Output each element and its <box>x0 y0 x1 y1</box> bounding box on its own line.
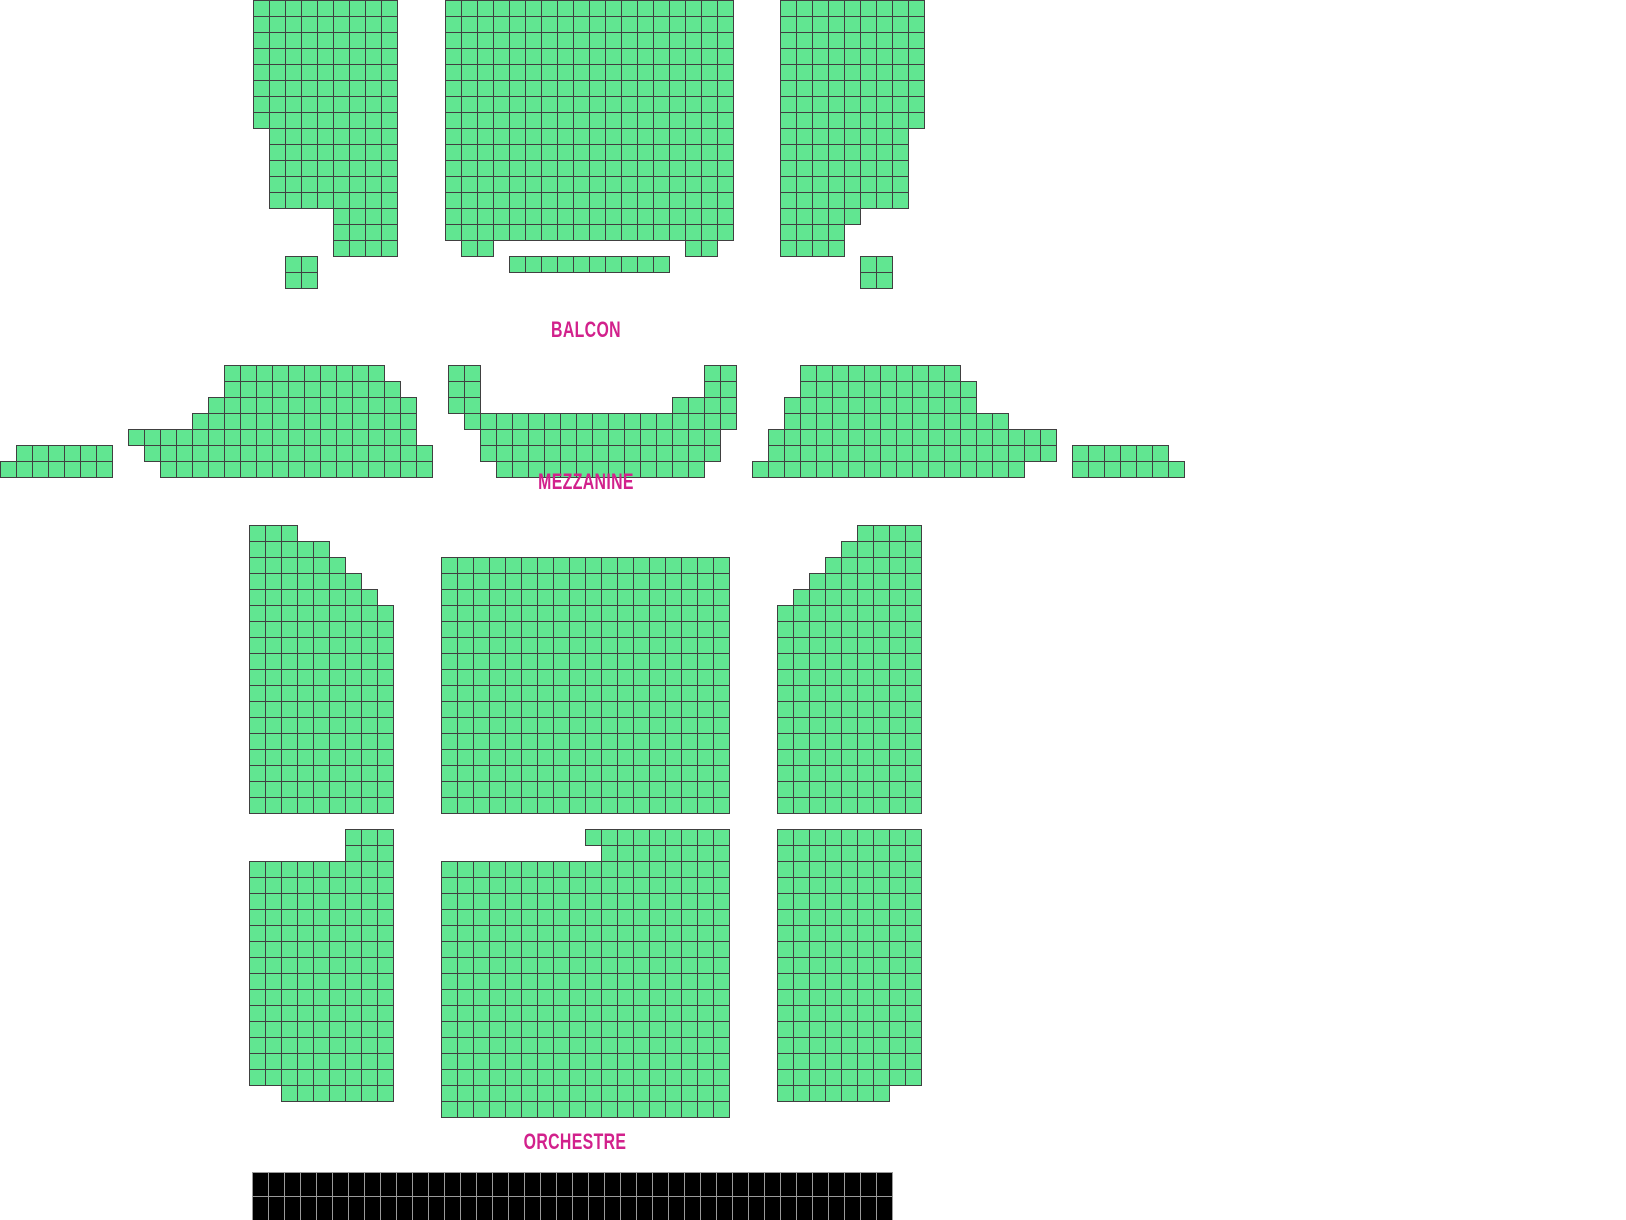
seat[interactable] <box>541 16 558 33</box>
seat[interactable] <box>224 461 241 478</box>
seat[interactable] <box>697 1053 714 1070</box>
seat[interactable] <box>553 765 570 782</box>
seat[interactable] <box>681 589 698 606</box>
seat[interactable] <box>876 96 893 113</box>
seat[interactable] <box>793 749 810 766</box>
seat[interactable] <box>265 941 282 958</box>
seat[interactable] <box>844 112 861 129</box>
seat[interactable] <box>857 621 874 638</box>
seat[interactable] <box>960 397 977 414</box>
seat[interactable] <box>605 176 622 193</box>
seat[interactable] <box>841 1069 858 1086</box>
seat[interactable] <box>825 589 842 606</box>
seat[interactable] <box>796 96 813 113</box>
seat[interactable] <box>240 445 257 462</box>
seat[interactable] <box>809 669 826 686</box>
seat[interactable] <box>665 1053 682 1070</box>
seat[interactable] <box>601 637 618 654</box>
seat[interactable] <box>249 781 266 798</box>
seat[interactable] <box>857 637 874 654</box>
seat[interactable] <box>800 461 817 478</box>
seat[interactable] <box>553 589 570 606</box>
seat[interactable] <box>509 144 526 161</box>
seat[interactable] <box>489 1069 506 1086</box>
seat[interactable] <box>633 861 650 878</box>
seat[interactable] <box>317 48 334 65</box>
seat[interactable] <box>701 240 718 257</box>
seat[interactable] <box>297 893 314 910</box>
seat[interactable] <box>361 653 378 670</box>
seat[interactable] <box>585 797 602 814</box>
seat[interactable] <box>976 429 993 446</box>
seat[interactable] <box>445 192 462 209</box>
seat[interactable] <box>304 429 321 446</box>
seat[interactable] <box>281 1021 298 1038</box>
seat[interactable] <box>281 973 298 990</box>
seat[interactable] <box>345 717 362 734</box>
seat[interactable] <box>713 557 730 574</box>
seat[interactable] <box>349 48 366 65</box>
seat[interactable] <box>793 893 810 910</box>
seat[interactable] <box>605 256 622 273</box>
seat[interactable] <box>457 605 474 622</box>
seat[interactable] <box>637 48 654 65</box>
seat[interactable] <box>128 429 145 446</box>
seat[interactable] <box>473 621 490 638</box>
seat[interactable] <box>352 461 369 478</box>
seat[interactable] <box>857 669 874 686</box>
seat[interactable] <box>793 909 810 926</box>
seat[interactable] <box>697 829 714 846</box>
seat[interactable] <box>873 701 890 718</box>
seat[interactable] <box>809 621 826 638</box>
seat[interactable] <box>873 797 890 814</box>
seat[interactable] <box>809 941 826 958</box>
seat[interactable] <box>688 445 705 462</box>
seat[interactable] <box>489 589 506 606</box>
seat[interactable] <box>873 989 890 1006</box>
seat[interactable] <box>681 941 698 958</box>
seat[interactable] <box>665 973 682 990</box>
seat[interactable] <box>525 48 542 65</box>
seat[interactable] <box>796 144 813 161</box>
seat[interactable] <box>1008 461 1025 478</box>
seat[interactable] <box>825 797 842 814</box>
seat[interactable] <box>809 845 826 862</box>
seat[interactable] <box>329 909 346 926</box>
seat[interactable] <box>445 144 462 161</box>
seat[interactable] <box>928 429 945 446</box>
seat[interactable] <box>617 1101 634 1118</box>
seat[interactable] <box>457 653 474 670</box>
seat[interactable] <box>313 573 330 590</box>
seat[interactable] <box>896 461 913 478</box>
seat[interactable] <box>365 16 382 33</box>
seat[interactable] <box>809 1005 826 1022</box>
seat[interactable] <box>265 973 282 990</box>
seat[interactable] <box>908 64 925 81</box>
seat[interactable] <box>345 909 362 926</box>
seat[interactable] <box>633 941 650 958</box>
seat[interactable] <box>457 733 474 750</box>
seat[interactable] <box>249 877 266 894</box>
seat[interactable] <box>553 1069 570 1086</box>
seat[interactable] <box>944 429 961 446</box>
seat[interactable] <box>841 541 858 558</box>
seat[interactable] <box>345 877 362 894</box>
seat[interactable] <box>828 0 845 17</box>
seat[interactable] <box>720 365 737 382</box>
seat[interactable] <box>301 192 318 209</box>
seat[interactable] <box>345 685 362 702</box>
seat[interactable] <box>601 989 618 1006</box>
seat[interactable] <box>589 64 606 81</box>
seat[interactable] <box>333 64 350 81</box>
seat[interactable] <box>537 733 554 750</box>
seat[interactable] <box>873 877 890 894</box>
seat[interactable] <box>285 48 302 65</box>
seat[interactable] <box>793 829 810 846</box>
seat[interactable] <box>793 957 810 974</box>
seat[interactable] <box>365 240 382 257</box>
seat[interactable] <box>672 445 689 462</box>
seat[interactable] <box>585 1069 602 1086</box>
seat[interactable] <box>285 192 302 209</box>
seat[interactable] <box>685 0 702 17</box>
seat[interactable] <box>857 973 874 990</box>
seat[interactable] <box>876 16 893 33</box>
seat[interactable] <box>697 845 714 862</box>
seat[interactable] <box>857 701 874 718</box>
seat[interactable] <box>717 224 734 241</box>
seat[interactable] <box>617 781 634 798</box>
seat[interactable] <box>557 208 574 225</box>
seat[interactable] <box>1152 445 1169 462</box>
seat[interactable] <box>585 749 602 766</box>
seat[interactable] <box>681 893 698 910</box>
seat[interactable] <box>649 637 666 654</box>
seat[interactable] <box>457 1053 474 1070</box>
seat[interactable] <box>269 112 286 129</box>
seat[interactable] <box>477 224 494 241</box>
seat[interactable] <box>685 160 702 177</box>
seat[interactable] <box>249 541 266 558</box>
seat[interactable] <box>701 16 718 33</box>
seat[interactable] <box>345 701 362 718</box>
seat[interactable] <box>521 669 538 686</box>
seat[interactable] <box>585 1053 602 1070</box>
seat[interactable] <box>477 32 494 49</box>
seat[interactable] <box>637 144 654 161</box>
seat[interactable] <box>617 701 634 718</box>
seat[interactable] <box>685 128 702 145</box>
seat[interactable] <box>713 669 730 686</box>
seat[interactable] <box>780 112 797 129</box>
seat[interactable] <box>489 941 506 958</box>
seat[interactable] <box>361 941 378 958</box>
seat[interactable] <box>521 781 538 798</box>
seat[interactable] <box>697 685 714 702</box>
seat[interactable] <box>297 1037 314 1054</box>
seat[interactable] <box>265 1005 282 1022</box>
seat[interactable] <box>585 573 602 590</box>
seat[interactable] <box>477 208 494 225</box>
seat[interactable] <box>592 413 609 430</box>
seat[interactable] <box>192 461 209 478</box>
seat[interactable] <box>892 80 909 97</box>
seat[interactable] <box>569 877 586 894</box>
seat[interactable] <box>697 941 714 958</box>
seat[interactable] <box>457 893 474 910</box>
seat[interactable] <box>649 765 666 782</box>
seat[interactable] <box>249 573 266 590</box>
seat[interactable] <box>537 1037 554 1054</box>
seat[interactable] <box>681 925 698 942</box>
seat[interactable] <box>649 589 666 606</box>
seat[interactable] <box>944 445 961 462</box>
seat[interactable] <box>720 397 737 414</box>
seat[interactable] <box>349 64 366 81</box>
seat[interactable] <box>892 0 909 17</box>
seat[interactable] <box>589 112 606 129</box>
seat[interactable] <box>601 589 618 606</box>
seat[interactable] <box>365 176 382 193</box>
seat[interactable] <box>569 1101 586 1118</box>
seat[interactable] <box>669 112 686 129</box>
seat[interactable] <box>905 653 922 670</box>
seat[interactable] <box>816 413 833 430</box>
seat[interactable] <box>457 925 474 942</box>
seat[interactable] <box>912 461 929 478</box>
seat[interactable] <box>601 781 618 798</box>
seat[interactable] <box>649 701 666 718</box>
seat[interactable] <box>368 461 385 478</box>
seat[interactable] <box>800 365 817 382</box>
seat[interactable] <box>377 893 394 910</box>
seat[interactable] <box>489 797 506 814</box>
seat[interactable] <box>441 861 458 878</box>
seat[interactable] <box>912 413 929 430</box>
seat[interactable] <box>637 16 654 33</box>
seat[interactable] <box>537 893 554 910</box>
seat[interactable] <box>345 573 362 590</box>
seat[interactable] <box>461 224 478 241</box>
seat[interactable] <box>889 701 906 718</box>
seat[interactable] <box>649 669 666 686</box>
seat[interactable] <box>621 256 638 273</box>
seat[interactable] <box>1152 461 1169 478</box>
seat[interactable] <box>349 0 366 17</box>
seat[interactable] <box>697 957 714 974</box>
seat[interactable] <box>633 589 650 606</box>
seat[interactable] <box>569 1005 586 1022</box>
seat[interactable] <box>905 925 922 942</box>
seat[interactable] <box>713 1021 730 1038</box>
seat[interactable] <box>301 0 318 17</box>
seat[interactable] <box>665 1037 682 1054</box>
seat[interactable] <box>489 605 506 622</box>
seat[interactable] <box>317 144 334 161</box>
seat[interactable] <box>509 256 526 273</box>
seat[interactable] <box>905 957 922 974</box>
seat[interactable] <box>717 128 734 145</box>
seat[interactable] <box>269 64 286 81</box>
seat[interactable] <box>720 413 737 430</box>
seat[interactable] <box>857 861 874 878</box>
seat[interactable] <box>249 1053 266 1070</box>
seat[interactable] <box>633 749 650 766</box>
seat[interactable] <box>329 925 346 942</box>
seat[interactable] <box>681 557 698 574</box>
seat[interactable] <box>285 272 302 289</box>
seat[interactable] <box>553 941 570 958</box>
seat[interactable] <box>653 48 670 65</box>
seat[interactable] <box>585 893 602 910</box>
seat[interactable] <box>272 429 289 446</box>
seat[interactable] <box>649 1101 666 1118</box>
seat[interactable] <box>441 797 458 814</box>
seat[interactable] <box>809 957 826 974</box>
seat[interactable] <box>889 877 906 894</box>
seat[interactable] <box>669 80 686 97</box>
seat[interactable] <box>857 829 874 846</box>
seat[interactable] <box>777 909 794 926</box>
seat[interactable] <box>573 16 590 33</box>
seat[interactable] <box>457 573 474 590</box>
seat[interactable] <box>653 192 670 209</box>
seat[interactable] <box>816 381 833 398</box>
seat[interactable] <box>793 605 810 622</box>
seat[interactable] <box>285 64 302 81</box>
seat[interactable] <box>828 96 845 113</box>
seat[interactable] <box>841 829 858 846</box>
seat[interactable] <box>557 224 574 241</box>
seat[interactable] <box>860 176 877 193</box>
seat[interactable] <box>841 733 858 750</box>
seat[interactable] <box>457 1069 474 1086</box>
seat[interactable] <box>361 1037 378 1054</box>
seat[interactable] <box>656 461 673 478</box>
seat[interactable] <box>288 381 305 398</box>
seat[interactable] <box>544 413 561 430</box>
seat[interactable] <box>825 877 842 894</box>
seat[interactable] <box>512 413 529 430</box>
seat[interactable] <box>285 80 302 97</box>
seat[interactable] <box>713 957 730 974</box>
seat[interactable] <box>249 861 266 878</box>
seat[interactable] <box>445 32 462 49</box>
seat[interactable] <box>480 445 497 462</box>
seat[interactable] <box>573 224 590 241</box>
seat[interactable] <box>345 1053 362 1070</box>
seat[interactable] <box>825 621 842 638</box>
seat[interactable] <box>457 797 474 814</box>
seat[interactable] <box>441 1101 458 1118</box>
seat[interactable] <box>352 365 369 382</box>
seat[interactable] <box>701 208 718 225</box>
seat[interactable] <box>681 1085 698 1102</box>
seat[interactable] <box>633 717 650 734</box>
seat[interactable] <box>585 829 602 846</box>
seat[interactable] <box>617 925 634 942</box>
seat[interactable] <box>349 112 366 129</box>
seat[interactable] <box>224 445 241 462</box>
seat[interactable] <box>621 32 638 49</box>
seat[interactable] <box>669 176 686 193</box>
seat[interactable] <box>621 160 638 177</box>
seat[interactable] <box>569 589 586 606</box>
seat[interactable] <box>873 669 890 686</box>
seat[interactable] <box>905 765 922 782</box>
seat[interactable] <box>617 1085 634 1102</box>
seat[interactable] <box>685 16 702 33</box>
seat[interactable] <box>649 1069 666 1086</box>
seat[interactable] <box>269 128 286 145</box>
seat[interactable] <box>873 1085 890 1102</box>
seat[interactable] <box>617 669 634 686</box>
seat[interactable] <box>633 621 650 638</box>
seat[interactable] <box>400 445 417 462</box>
seat[interactable] <box>256 381 273 398</box>
seat[interactable] <box>297 701 314 718</box>
seat[interactable] <box>377 717 394 734</box>
seat[interactable] <box>336 397 353 414</box>
seat[interactable] <box>928 397 945 414</box>
seat[interactable] <box>560 429 577 446</box>
seat[interactable] <box>349 96 366 113</box>
seat[interactable] <box>681 749 698 766</box>
seat[interactable] <box>240 413 257 430</box>
seat[interactable] <box>873 749 890 766</box>
seat[interactable] <box>553 957 570 974</box>
seat[interactable] <box>489 1101 506 1118</box>
seat[interactable] <box>624 413 641 430</box>
seat[interactable] <box>601 621 618 638</box>
seat[interactable] <box>297 557 314 574</box>
seat[interactable] <box>569 749 586 766</box>
seat[interactable] <box>336 381 353 398</box>
seat[interactable] <box>793 925 810 942</box>
seat[interactable] <box>505 749 522 766</box>
seat[interactable] <box>812 80 829 97</box>
seat[interactable] <box>473 973 490 990</box>
seat[interactable] <box>665 909 682 926</box>
seat[interactable] <box>361 1085 378 1102</box>
seat[interactable] <box>573 256 590 273</box>
seat[interactable] <box>825 733 842 750</box>
seat[interactable] <box>649 797 666 814</box>
seat[interactable] <box>317 32 334 49</box>
seat[interactable] <box>256 461 273 478</box>
seat[interactable] <box>944 397 961 414</box>
seat[interactable] <box>905 845 922 862</box>
seat[interactable] <box>860 64 877 81</box>
seat[interactable] <box>825 653 842 670</box>
seat[interactable] <box>320 381 337 398</box>
seat[interactable] <box>441 637 458 654</box>
seat[interactable] <box>713 1037 730 1054</box>
seat[interactable] <box>281 989 298 1006</box>
seat[interactable] <box>345 989 362 1006</box>
seat[interactable] <box>681 973 698 990</box>
seat[interactable] <box>825 1085 842 1102</box>
seat[interactable] <box>557 80 574 97</box>
seat[interactable] <box>697 605 714 622</box>
seat[interactable] <box>713 621 730 638</box>
seat[interactable] <box>541 48 558 65</box>
seat[interactable] <box>496 445 513 462</box>
seat[interactable] <box>777 653 794 670</box>
